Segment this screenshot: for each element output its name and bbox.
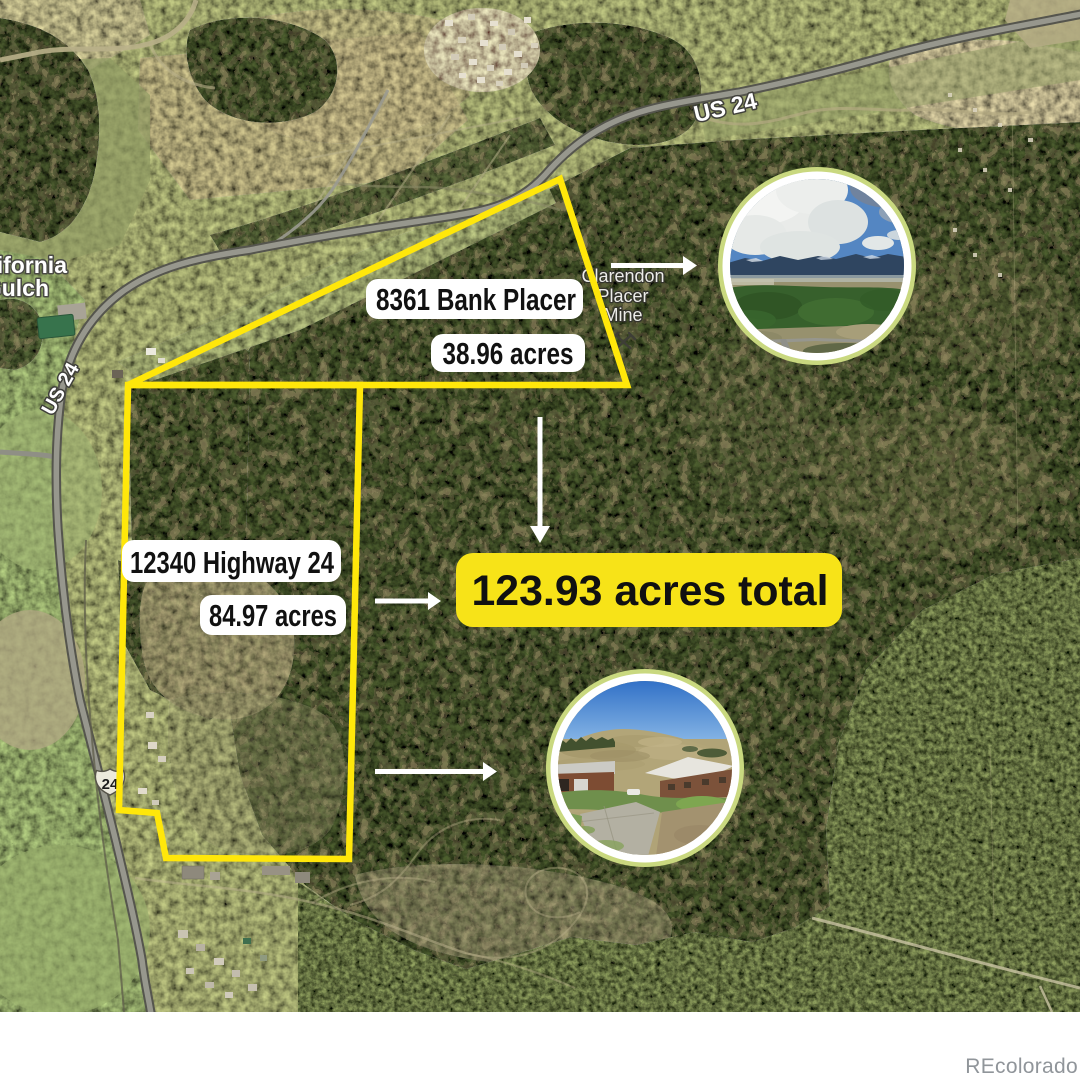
svg-text:Gulch: Gulch (0, 275, 49, 301)
svg-text:REcolorado: REcolorado (965, 1055, 1078, 1078)
svg-text:38.96 acres: 38.96 acres (443, 336, 574, 371)
svg-text:84.97 acres: 84.97 acres (209, 598, 337, 633)
svg-text:123.93 acres total: 123.93 acres total (472, 567, 829, 615)
svg-text:8361 Bank Placer: 8361 Bank Placer (376, 282, 576, 317)
svg-text:Placer: Placer (597, 286, 648, 306)
svg-text:12340 Highway 24: 12340 Highway 24 (130, 545, 335, 580)
